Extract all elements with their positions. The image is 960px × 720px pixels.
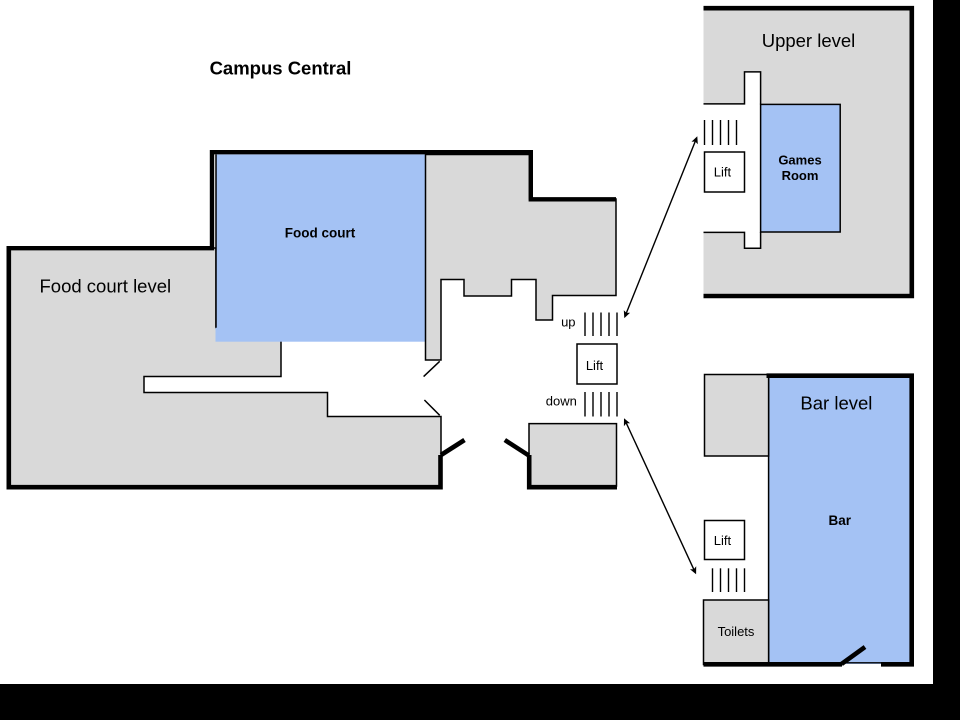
svg-text:down: down	[546, 393, 577, 408]
svg-text:Food court: Food court	[285, 226, 356, 241]
svg-text:Campus Central: Campus Central	[210, 57, 352, 78]
svg-text:Toilets: Toilets	[718, 624, 755, 639]
svg-text:Lift: Lift	[714, 165, 732, 180]
svg-text:Games: Games	[778, 152, 821, 167]
svg-text:Lift: Lift	[714, 533, 732, 548]
svg-text:Lift: Lift	[586, 358, 604, 373]
svg-text:Upper level: Upper level	[762, 30, 856, 51]
svg-text:Food court level: Food court level	[40, 276, 172, 297]
svg-text:up: up	[561, 314, 575, 329]
svg-text:Bar: Bar	[829, 513, 852, 528]
svg-text:Bar level: Bar level	[800, 392, 872, 413]
svg-text:Room: Room	[782, 168, 819, 183]
